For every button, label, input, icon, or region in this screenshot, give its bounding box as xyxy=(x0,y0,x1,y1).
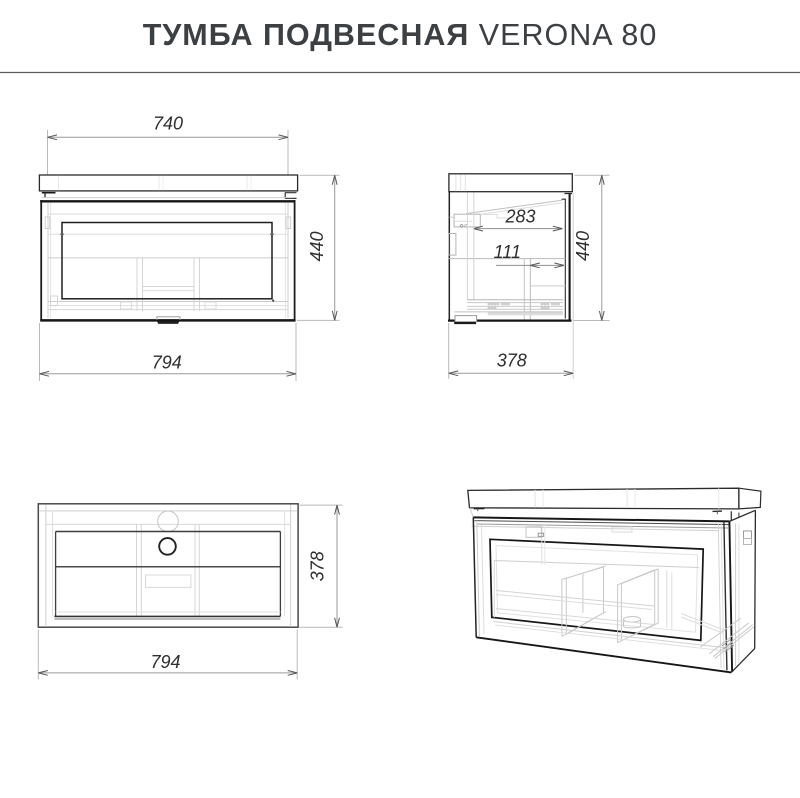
svg-text:740: 740 xyxy=(153,114,183,134)
svg-text:794: 794 xyxy=(150,652,180,672)
svg-text:283: 283 xyxy=(504,207,535,227)
svg-text:378: 378 xyxy=(497,350,527,370)
svg-text:440: 440 xyxy=(573,231,593,261)
svg-text:440: 440 xyxy=(307,231,327,261)
svg-text:111: 111 xyxy=(494,242,521,262)
svg-text:794: 794 xyxy=(152,353,182,373)
svg-text:ТУМБА ПОДВЕСНАЯ VERONA 80: ТУМБА ПОДВЕСНАЯ VERONA 80 xyxy=(143,18,658,52)
svg-text:378: 378 xyxy=(308,551,328,581)
